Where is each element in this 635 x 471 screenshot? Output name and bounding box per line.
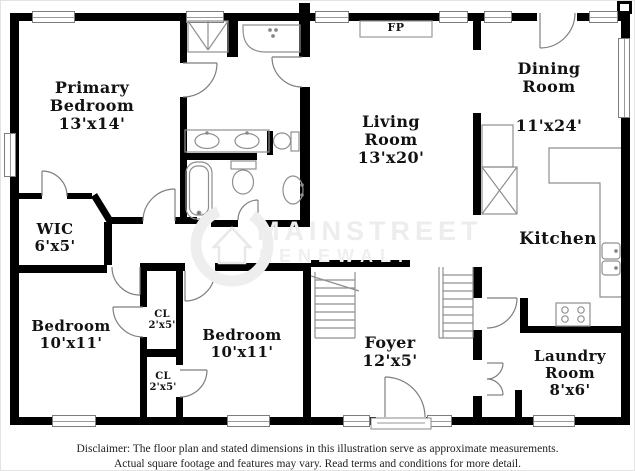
door-arc-primary-bath	[183, 63, 217, 97]
window	[32, 11, 75, 23]
room-label-kitchen: Kitchen	[519, 230, 597, 249]
wall	[180, 21, 187, 63]
window	[439, 11, 468, 23]
window	[427, 415, 452, 427]
wall	[473, 330, 482, 360]
door-arc-back-door	[540, 13, 575, 48]
room-label-closet-upper: CL 2'x5'	[148, 309, 175, 331]
disclaimer-line: Disclaimer: The floor plan and stated di…	[0, 442, 635, 457]
room-label-bedroom-left: Bedroom 10'x11'	[31, 318, 110, 352]
wall	[515, 390, 522, 417]
wall	[10, 193, 42, 199]
front-door-sill	[371, 418, 431, 429]
wall	[107, 217, 143, 224]
window	[343, 415, 370, 427]
wall	[67, 193, 92, 199]
wall	[426, 417, 630, 425]
room-label-dining-room: Dining Room	[518, 60, 581, 96]
wall	[104, 222, 112, 265]
kitchen-sink	[602, 243, 620, 275]
wall	[473, 113, 481, 215]
room-label-bedroom-right: Bedroom 10'x11'	[202, 327, 281, 361]
kitchen-counter	[549, 148, 621, 297]
wall	[10, 13, 19, 425]
wall	[215, 263, 303, 271]
mainstreet-renewal-logo-icon	[188, 202, 280, 294]
door-arc-laundry-double	[487, 363, 503, 395]
wall	[267, 131, 273, 155]
door-arc-water-closet	[272, 57, 302, 87]
door-arc-kitchen	[487, 298, 517, 328]
wall	[185, 153, 257, 160]
wall	[311, 260, 410, 267]
wall	[299, 3, 310, 57]
door-arc-closet-upper	[113, 307, 143, 337]
window	[4, 133, 16, 177]
fireplace-label: FP	[388, 22, 405, 34]
stove	[556, 303, 590, 326]
shower	[188, 21, 228, 52]
door-arc-front-door	[385, 377, 425, 417]
wall	[227, 21, 238, 57]
wall	[303, 263, 311, 417]
refrigerator	[482, 125, 513, 167]
door-arc-closet-lower	[180, 370, 207, 397]
wall	[175, 217, 197, 224]
door-arc-bedroom-right	[185, 271, 215, 301]
wall	[473, 13, 481, 50]
wall	[300, 87, 310, 227]
window	[533, 415, 575, 427]
room-label-living-room: Living Room 13'x20'	[358, 113, 425, 167]
window	[186, 11, 224, 23]
door-arc-bedroom-left	[112, 267, 140, 295]
wall	[197, 220, 201, 227]
stairs	[439, 267, 473, 338]
wall	[215, 220, 238, 227]
room-label-laundry-room: Laundry Room 8'x6'	[534, 348, 606, 399]
window	[315, 11, 349, 23]
room-label-closet-lower: CL 2'x5'	[149, 371, 176, 393]
floor-plan: Primary Bedroom 13'x14' WIC 6'x5' Bedroo…	[0, 0, 635, 471]
window	[484, 11, 512, 23]
wall	[258, 220, 310, 227]
window	[589, 11, 618, 23]
disclaimer-line: Actual square footage and features may v…	[0, 457, 635, 471]
double-vanity	[185, 130, 269, 152]
wall	[473, 396, 482, 417]
vanity-sink	[243, 25, 300, 52]
wall	[10, 265, 107, 273]
wall	[140, 271, 147, 307]
door-arc-wic-entry	[42, 171, 67, 196]
wall	[143, 349, 183, 357]
window	[618, 38, 630, 118]
toilet	[231, 161, 256, 194]
room-label-primary-bedroom: Primary Bedroom 13'x14'	[50, 79, 134, 133]
room-label-dining-dims: 11'x24'	[516, 117, 583, 135]
stairs	[311, 272, 359, 338]
door-arc-primary-bedroom	[143, 189, 175, 221]
wall	[520, 326, 630, 333]
wall	[473, 267, 482, 298]
room-label-foyer: Foyer 12'x5'	[362, 334, 417, 370]
room-label-wic: WIC 6'x5'	[34, 221, 75, 255]
door-arc-bath-inner	[238, 200, 258, 220]
window	[227, 415, 270, 427]
pantry-cabinet	[482, 167, 517, 214]
wall	[176, 397, 183, 417]
toilet	[274, 132, 300, 151]
bathtub	[186, 162, 212, 219]
window	[52, 415, 96, 427]
wall	[140, 263, 185, 271]
disclaimer: Disclaimer: The floor plan and stated di…	[0, 442, 635, 471]
